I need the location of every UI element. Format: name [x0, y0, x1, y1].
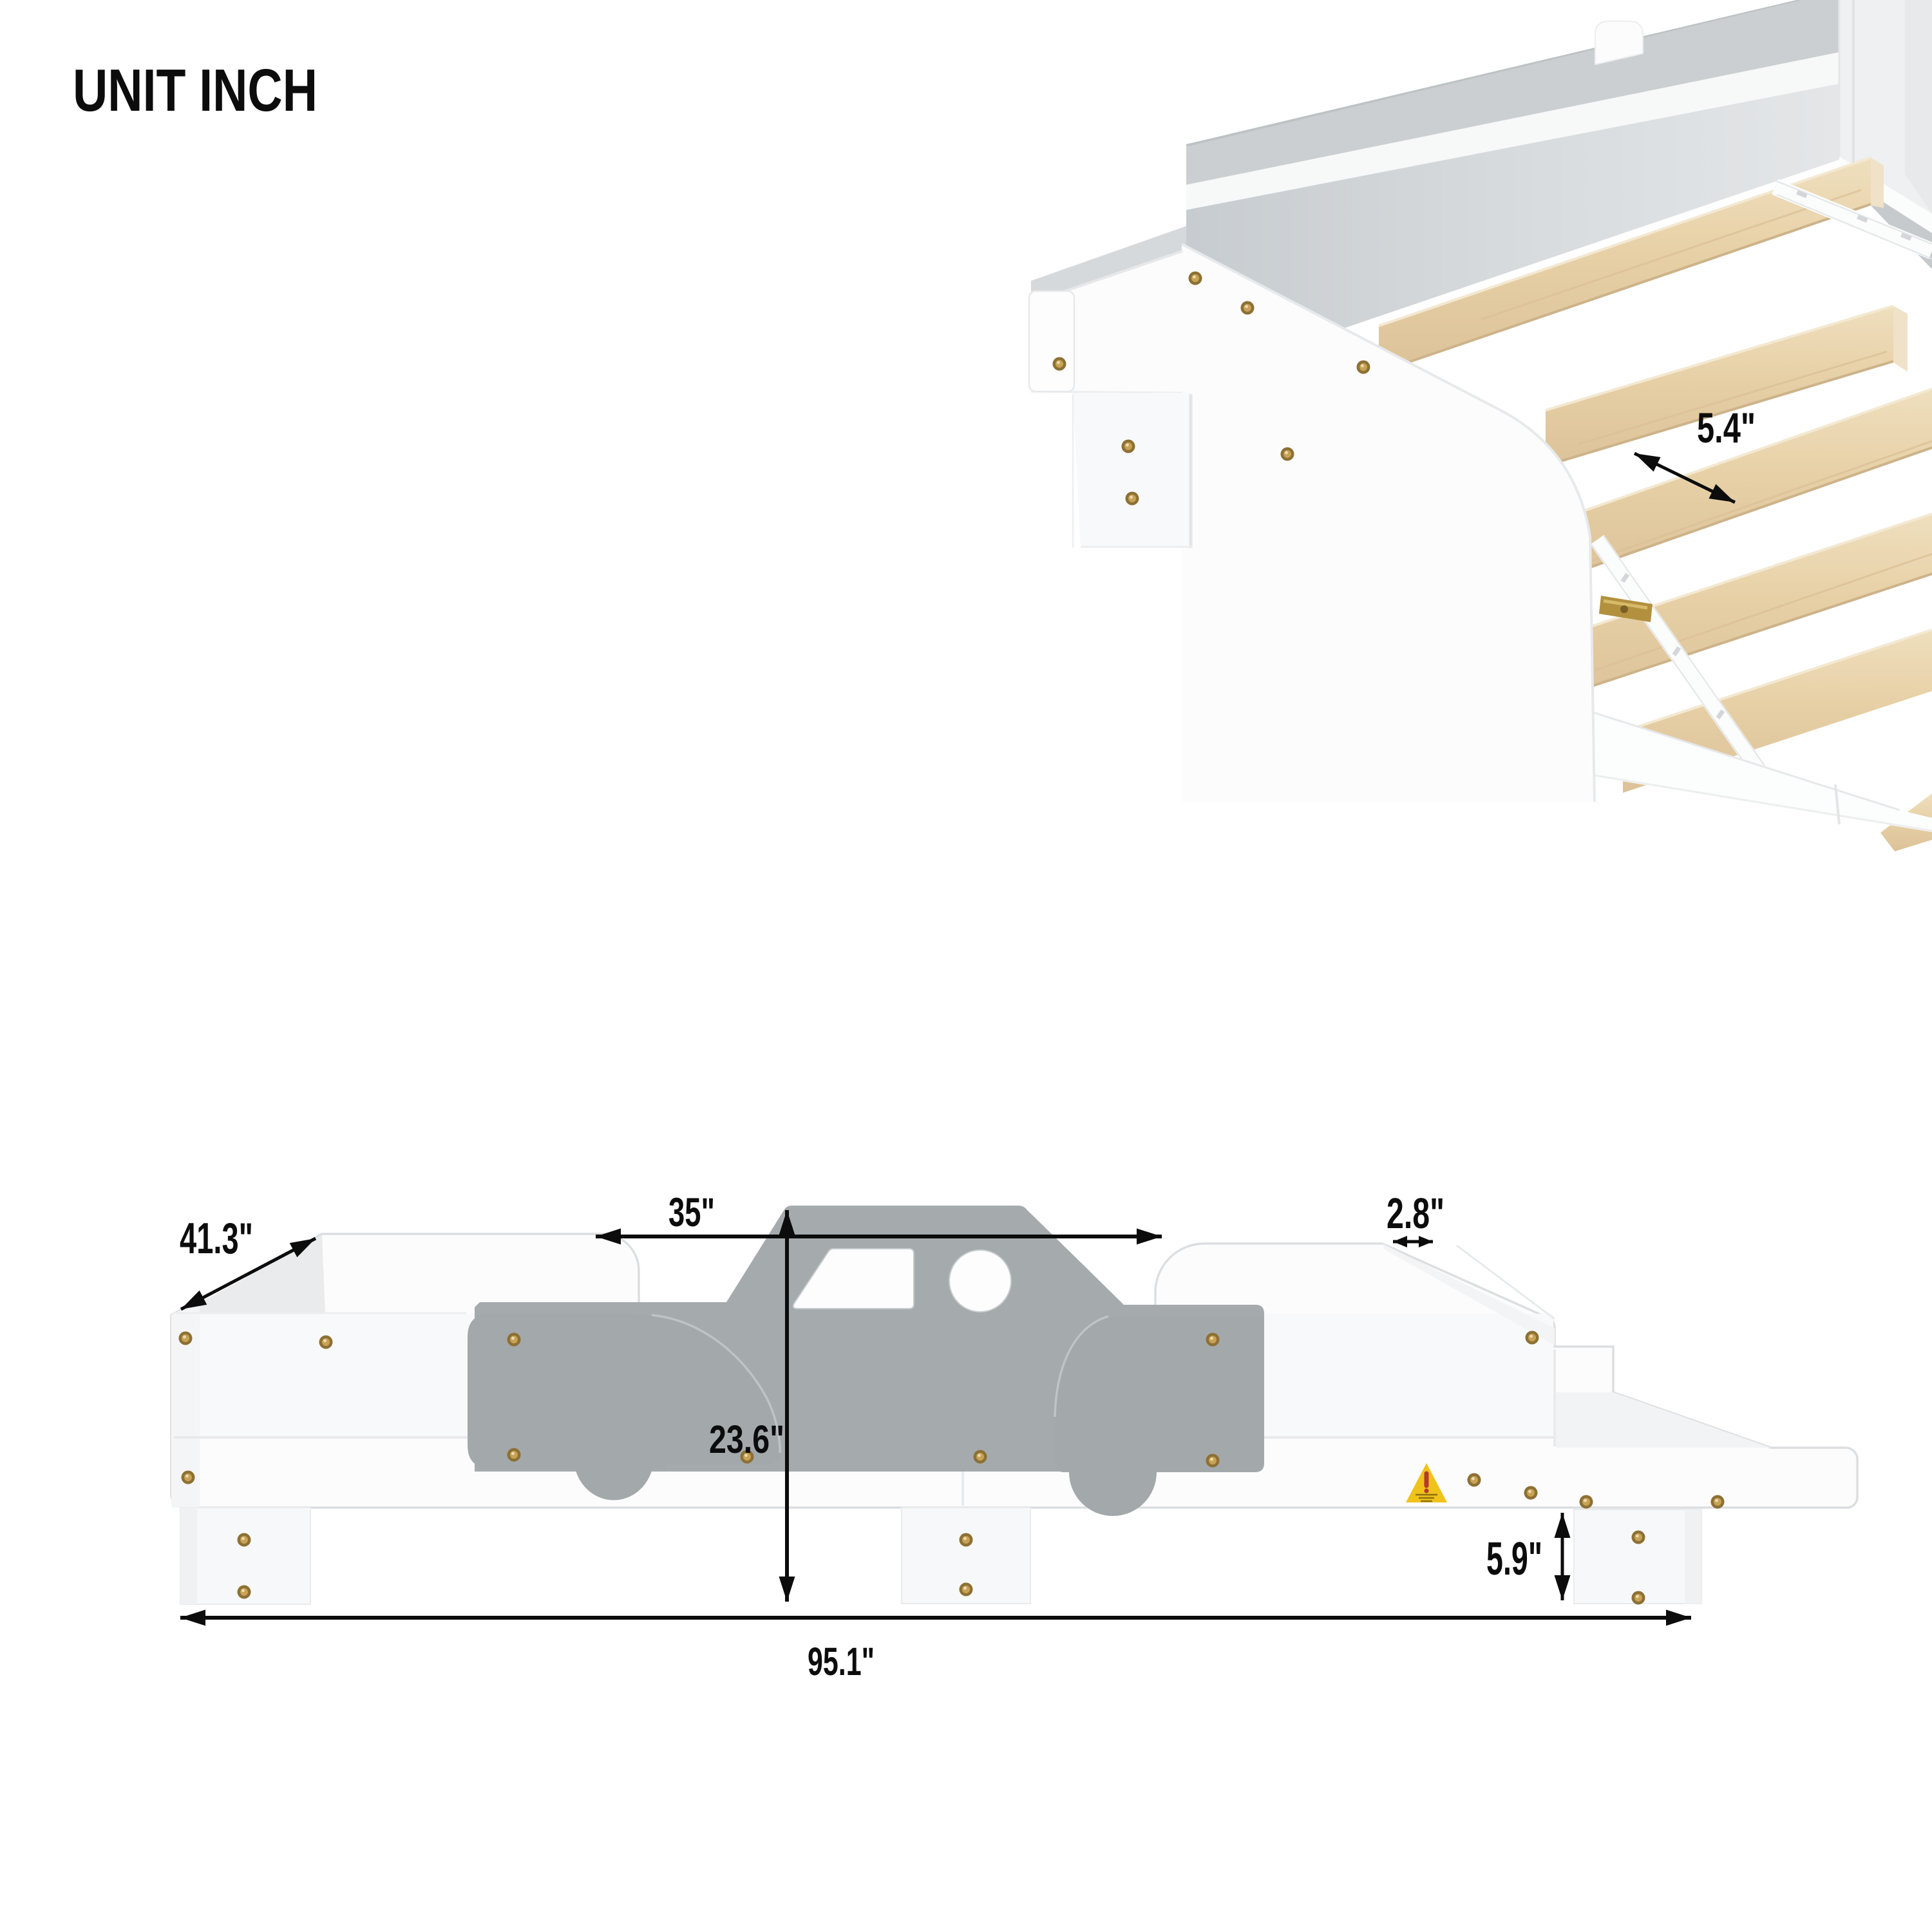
svg-text:5.9": 5.9"	[1486, 1533, 1542, 1585]
svg-text:2.8": 2.8"	[1387, 1189, 1444, 1238]
svg-text:41.3": 41.3"	[180, 1214, 253, 1263]
svg-text:23.6": 23.6"	[709, 1417, 784, 1461]
svg-text:UNIT INCH: UNIT INCH	[73, 57, 317, 124]
svg-text:95.1": 95.1"	[808, 1640, 875, 1683]
svg-text:35": 35"	[668, 1190, 715, 1235]
svg-text:5.4": 5.4"	[1697, 404, 1756, 451]
